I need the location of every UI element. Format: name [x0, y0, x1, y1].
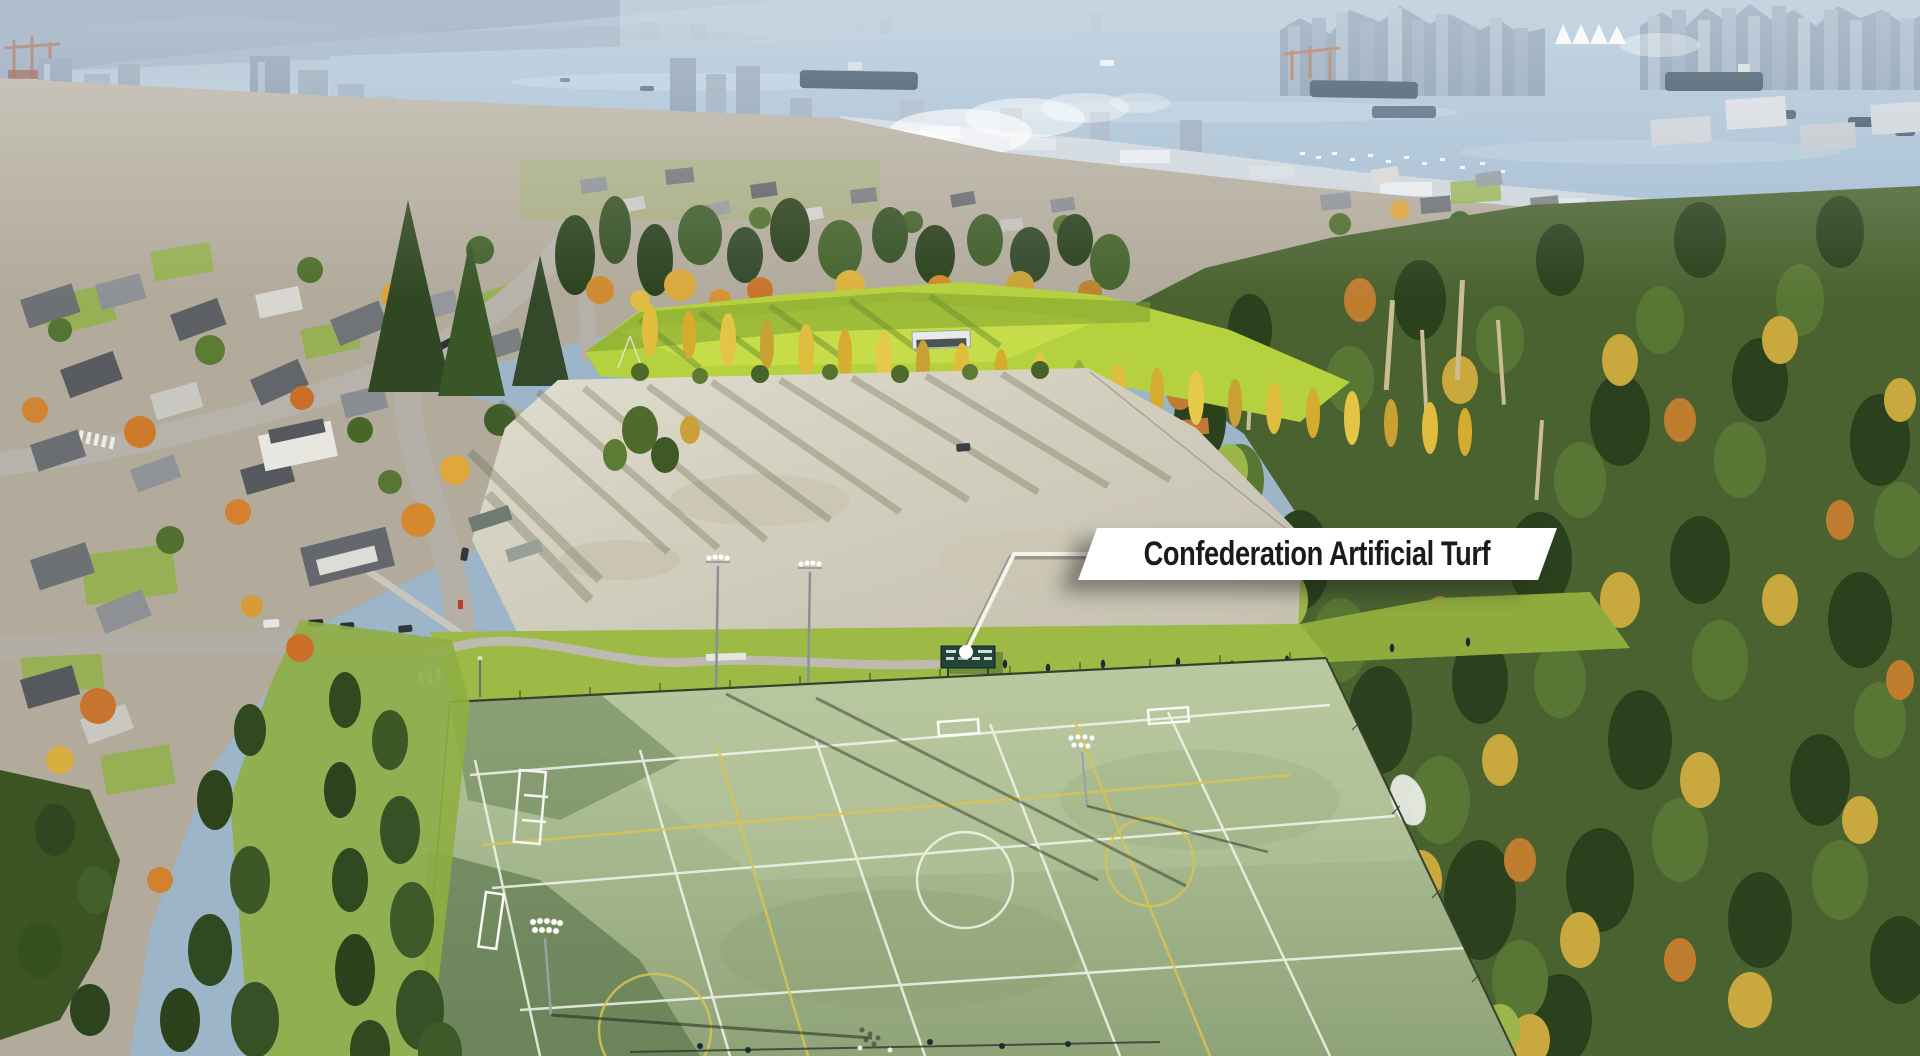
bench: [706, 653, 746, 661]
mailbox: [458, 600, 463, 609]
aerial-photo-scene: [0, 0, 1920, 1056]
atmospheric-haze: [0, 0, 1920, 300]
field-label-banner: Confederation Artificial Turf: [1078, 528, 1557, 580]
leader-endpoint-dot: [959, 645, 973, 659]
field-label-text: Confederation Artificial Turf: [1144, 535, 1491, 574]
turf-field: [420, 652, 1516, 1056]
aerial-photo: Confederation Artificial Turf: [0, 0, 1920, 1056]
car-on-gravel: [956, 443, 971, 452]
